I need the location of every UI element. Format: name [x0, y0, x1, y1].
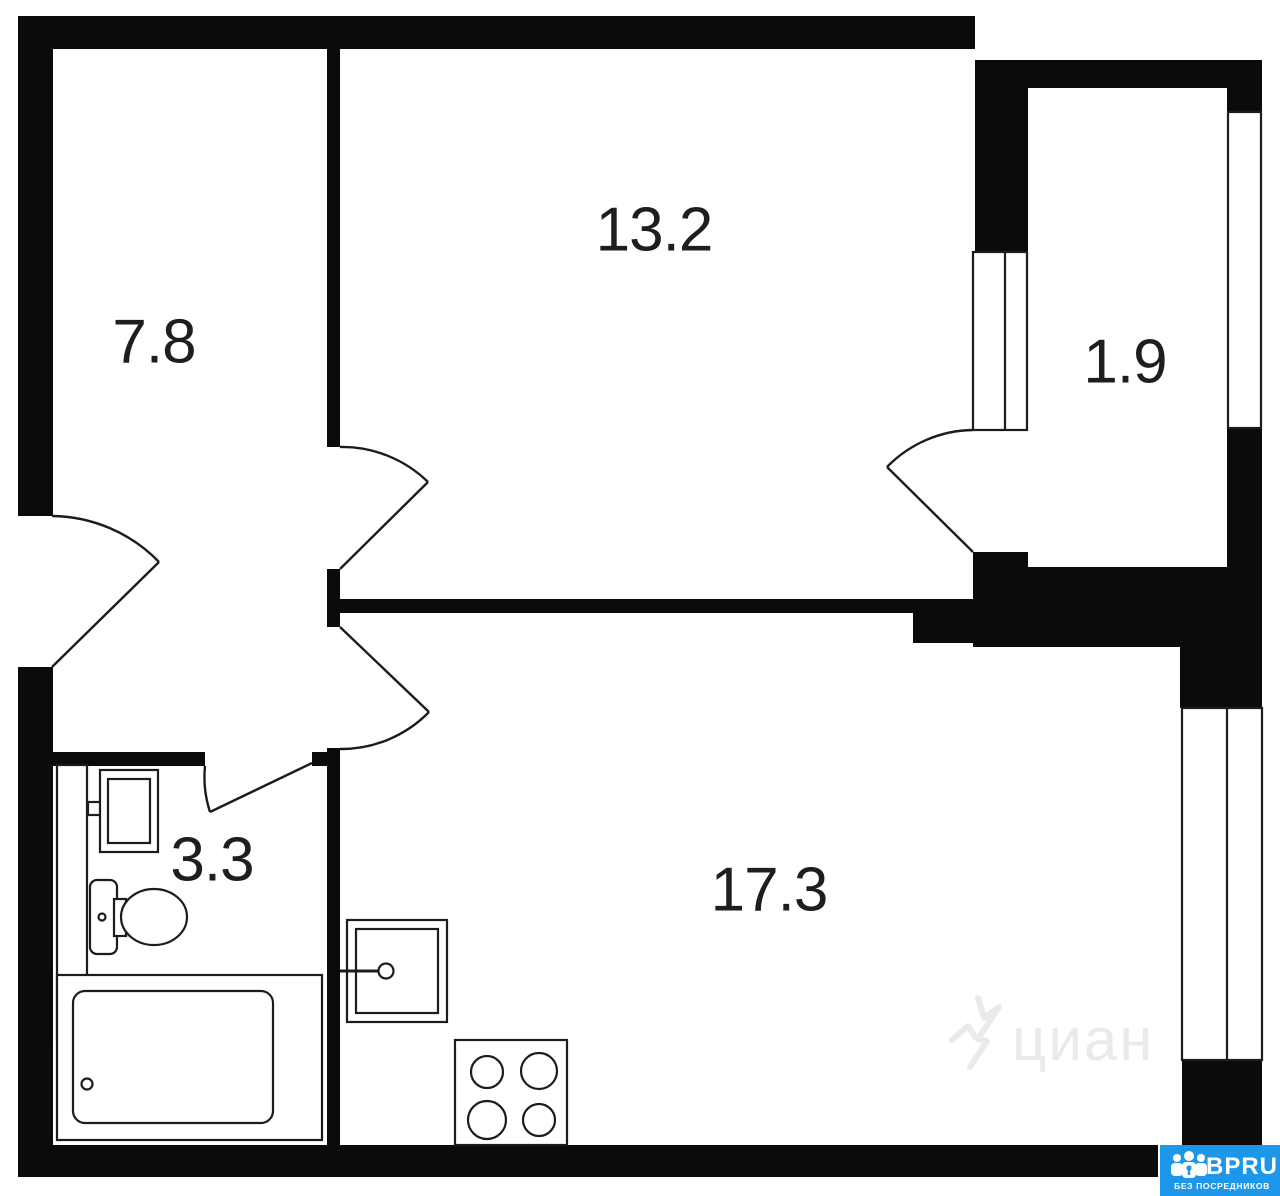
- wall-top: [18, 16, 975, 49]
- logo-tagline-text: БЕЗ ПОСРЕДНИКОВ: [1174, 1181, 1270, 1191]
- wall-balcony-top: [975, 60, 1262, 88]
- floor-plan: 7.8 13.2 1.9 3.3 17.3 циан BPRU БЕЗ ПОСР…: [0, 0, 1280, 1196]
- entrance-door-arc: [52, 516, 159, 667]
- wall-balcony-column: [975, 60, 1028, 252]
- living-room-window: [1182, 708, 1262, 1060]
- wall-bottom: [18, 1145, 1158, 1177]
- wall-corner-step: [1180, 647, 1262, 708]
- bathroom-fixtures: [57, 765, 322, 1140]
- bpru-logo: BPRU БЕЗ ПОСРЕДНИКОВ: [1160, 1145, 1280, 1196]
- wall-hallway-room: [327, 49, 340, 447]
- kitchen-sink-icon: [340, 920, 447, 1022]
- room-label-living-room: 17.3: [711, 856, 828, 925]
- living-room-door-arc: [340, 627, 429, 749]
- watermark-text: циан: [1012, 1006, 1154, 1073]
- cian-watermark: циан: [952, 998, 1154, 1073]
- room-label-balcony: 1.9: [1083, 328, 1166, 397]
- wall-mid-stub: [327, 569, 340, 627]
- room-label-hallway: 7.8: [112, 308, 195, 377]
- wall-below-living-window: [1182, 1060, 1262, 1145]
- kitchen-fixtures: [340, 920, 567, 1145]
- wall-below-balcony-door: [973, 552, 1028, 647]
- wall-left-lower: [18, 667, 53, 1177]
- bathroom-door-arc: [204, 763, 312, 812]
- wall-room-living: [340, 599, 913, 613]
- room-label-bathroom: 3.3: [170, 826, 253, 895]
- floor-plan-page: 7.8 13.2 1.9 3.3 17.3 циан BPRU БЕЗ ПОСР…: [0, 0, 1280, 1196]
- wall-bathroom-right: [327, 748, 340, 1145]
- wall-room-living-end: [913, 599, 973, 643]
- wall-balcony-window-bottom: [1227, 428, 1262, 567]
- wall-bathroom-top-right: [312, 752, 340, 766]
- stove-icon: [455, 1040, 567, 1145]
- bathroom-sink-icon: [88, 770, 158, 852]
- balcony-door-arc: [887, 430, 973, 552]
- wall-balcony-bottom: [1028, 567, 1262, 647]
- room-door-arc: [340, 447, 428, 569]
- wall-left-upper: [18, 16, 53, 516]
- balcony-window: [1228, 112, 1261, 428]
- wall-balcony-window-top: [1227, 88, 1262, 112]
- bathtub-icon: [57, 975, 322, 1140]
- room-label-room: 13.2: [596, 196, 713, 265]
- logo-brand-text: BPRU: [1206, 1153, 1278, 1180]
- room-balcony-window: [973, 252, 1027, 430]
